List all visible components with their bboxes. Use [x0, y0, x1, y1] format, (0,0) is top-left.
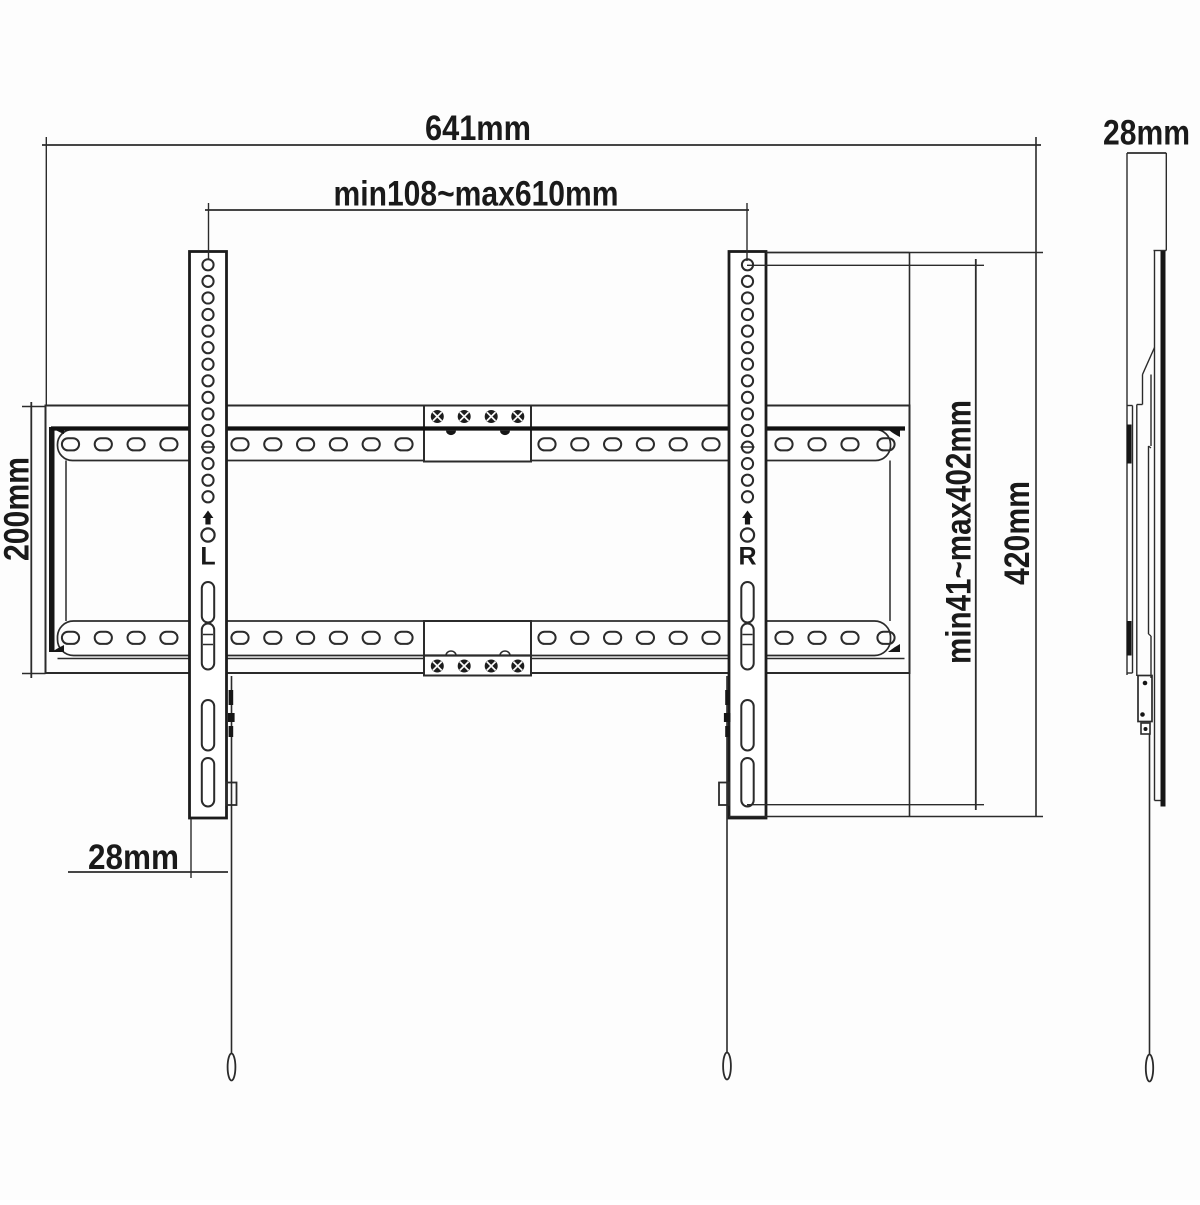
svg-text:28mm: 28mm [1103, 114, 1190, 153]
svg-text:641mm: 641mm [425, 109, 531, 148]
svg-text:min108~max610mm: min108~max610mm [334, 175, 619, 214]
svg-text:200mm: 200mm [0, 457, 37, 561]
svg-text:420mm: 420mm [998, 481, 1037, 585]
svg-text:R: R [738, 543, 756, 571]
svg-text:L: L [200, 543, 215, 571]
svg-text:28mm: 28mm [88, 838, 179, 877]
svg-text:min41~max402mm: min41~max402mm [940, 400, 979, 664]
